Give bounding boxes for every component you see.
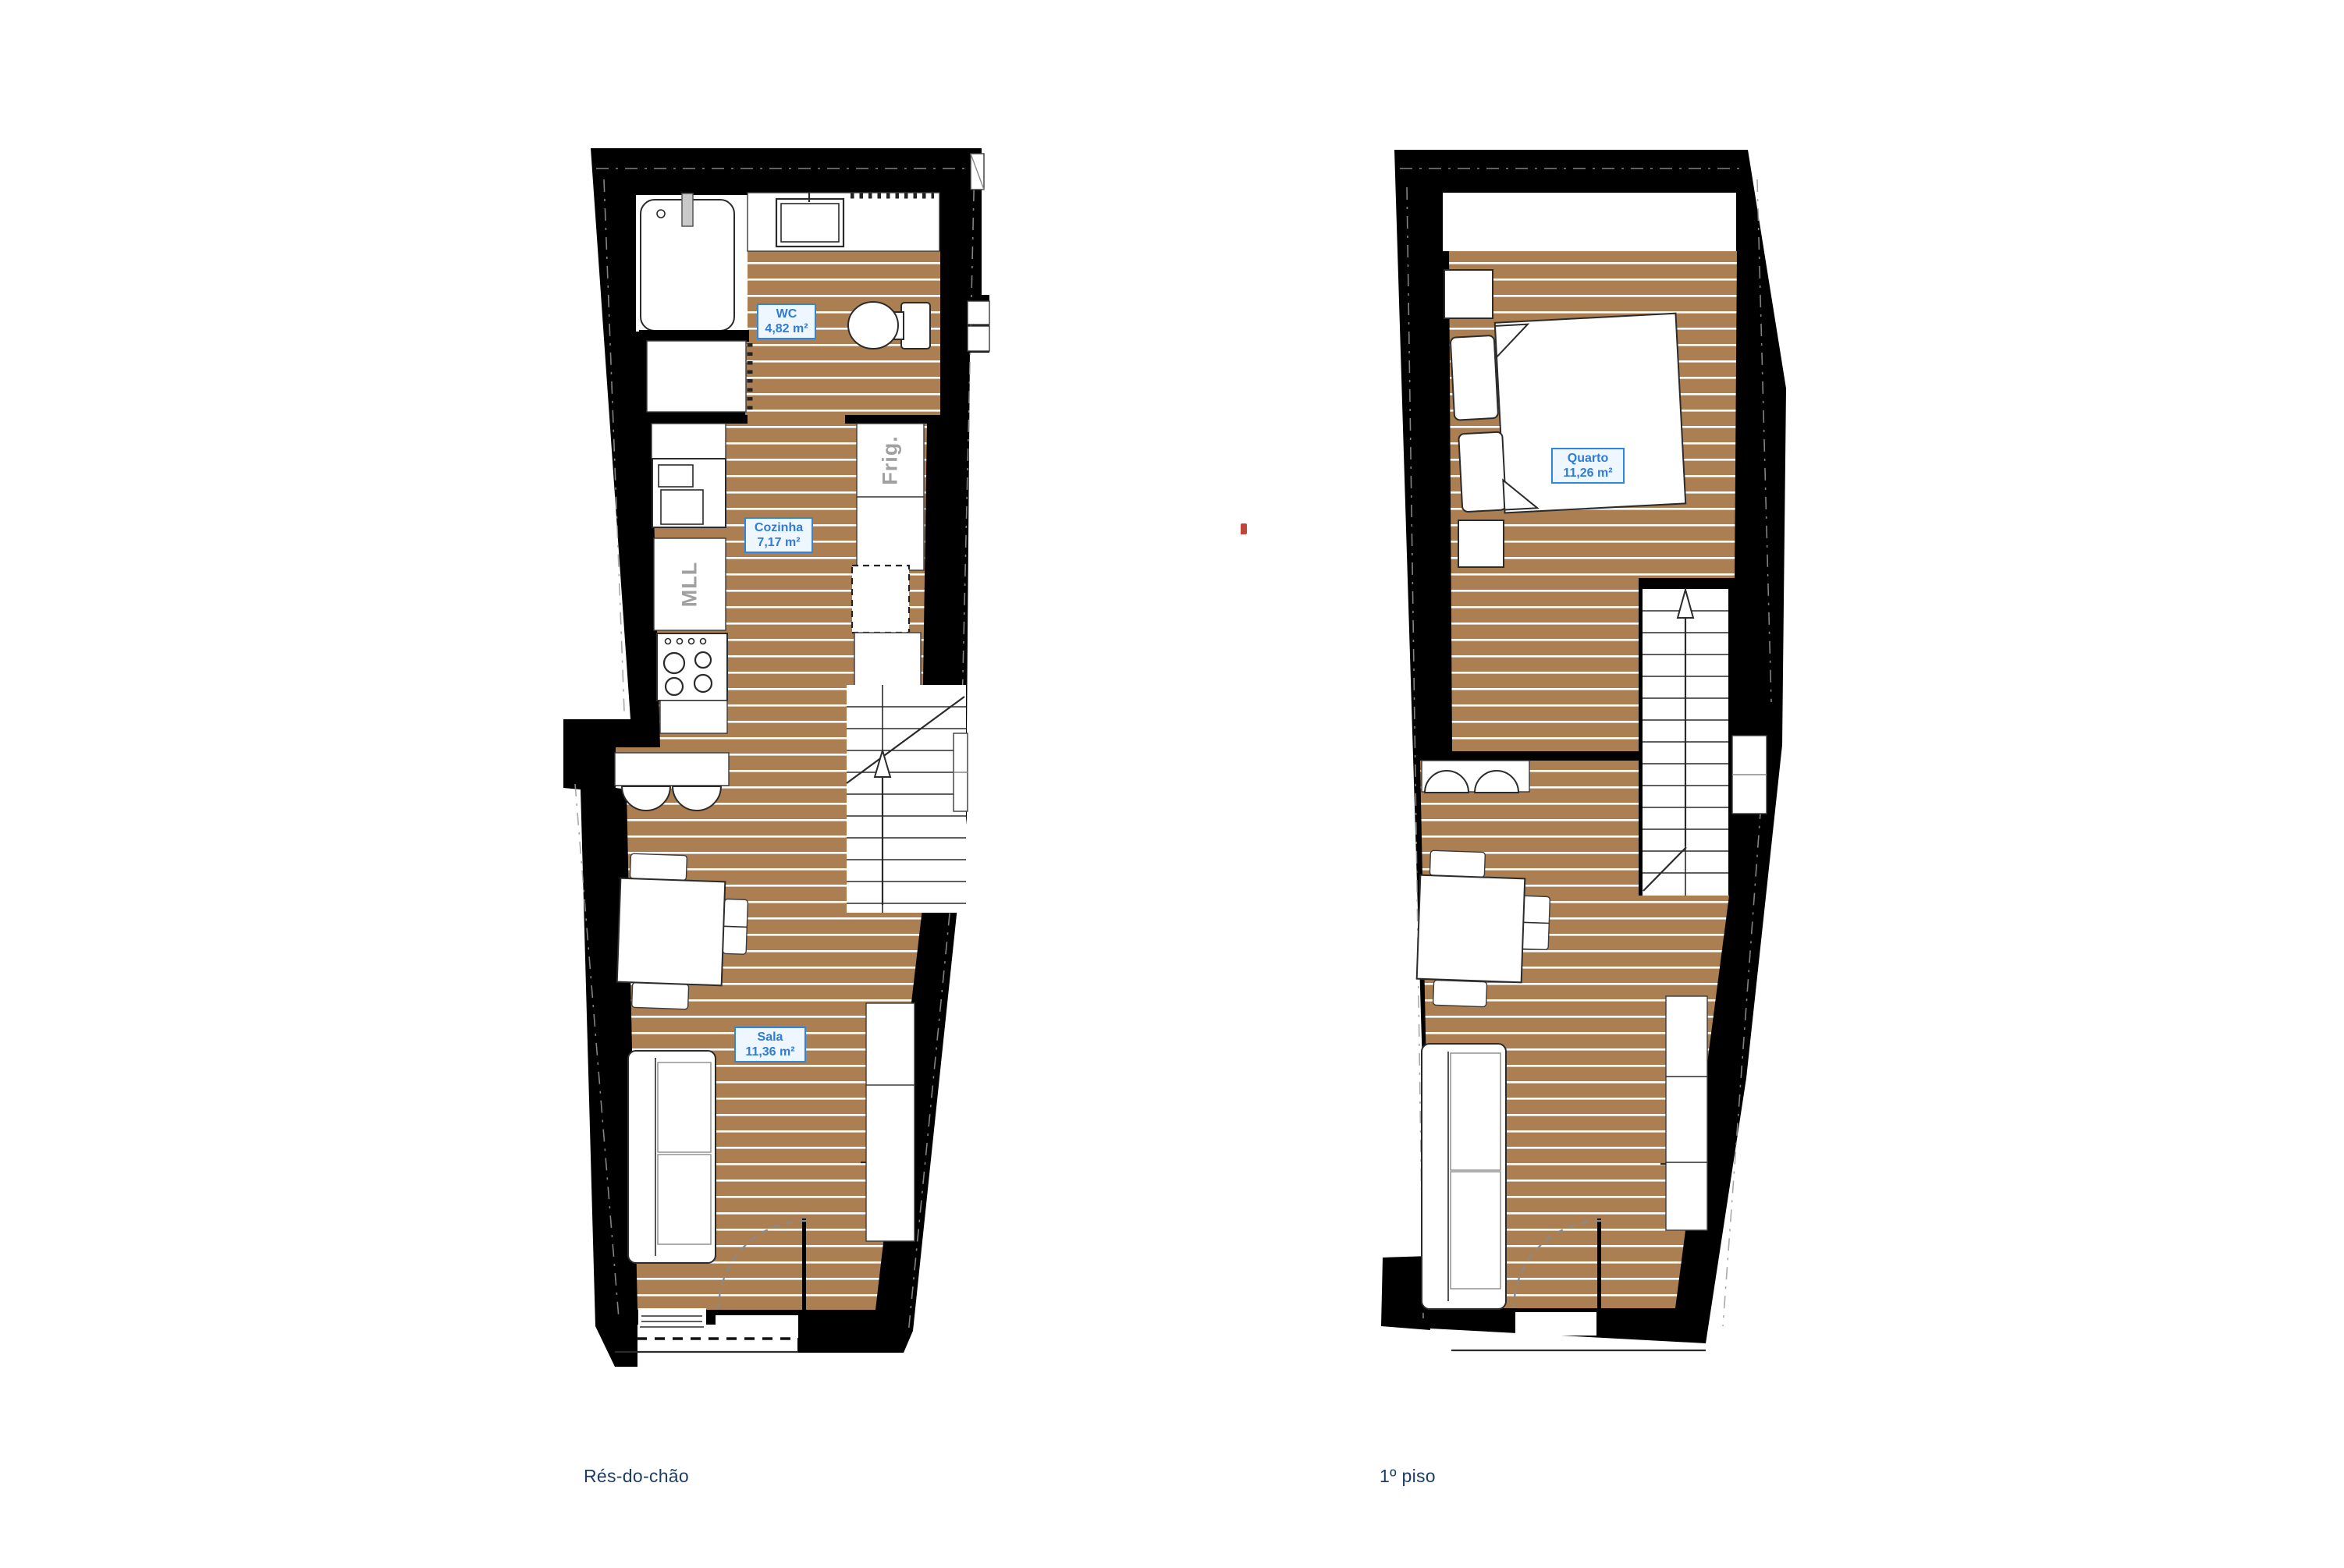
stair-window: [954, 733, 968, 811]
sofa-ground: [628, 1051, 716, 1263]
toilet: [848, 302, 930, 349]
staircase-ground: [847, 685, 966, 913]
room-area: 11,26 m²: [1554, 466, 1621, 481]
pillow: [1458, 432, 1506, 513]
wardrobe-first: [1660, 996, 1707, 1230]
floorplan-drawing: [0, 0, 2344, 1568]
floorplan-page: WC 4,82 m² Cozinha 7,17 m² Sala 11,36 m²…: [0, 0, 2344, 1568]
room-name: Quarto: [1554, 451, 1621, 466]
pillow: [1451, 335, 1498, 420]
dining-table: [617, 878, 726, 986]
sideboard: [615, 753, 729, 786]
dishwasher: [852, 566, 909, 633]
ground-floor-title: Rés-do-chão: [584, 1466, 689, 1487]
chair: [630, 853, 687, 880]
bathtub-faucet: [682, 193, 693, 226]
first-door-leaf: [1597, 1219, 1601, 1311]
stair-window-first: [1732, 736, 1767, 814]
room-name: WC: [760, 307, 813, 321]
dining-table: [1417, 875, 1525, 983]
room-label-sala: Sala 11,36 m²: [734, 1027, 806, 1062]
red-artifact-mark: [1241, 523, 1247, 534]
first-floor-title: 1º piso: [1380, 1466, 1436, 1487]
room-name: Cozinha: [748, 520, 810, 535]
room-label-quarto: Quarto 11,26 m²: [1551, 448, 1625, 484]
chair: [1433, 980, 1487, 1006]
wc-cabinet: [647, 341, 746, 412]
plan-first-drawing: [1381, 150, 1786, 1350]
room-area: 4,82 m²: [760, 321, 813, 336]
wall-basin: [968, 301, 989, 351]
chair: [1429, 850, 1485, 877]
staircase-first: [1643, 589, 1728, 896]
entry-door-leaf: [802, 1219, 806, 1311]
wardrobe-ground: [861, 1003, 915, 1241]
bed: [1450, 314, 1685, 516]
room-area: 7,17 m²: [748, 535, 810, 550]
fridge-label: Frig.: [879, 435, 903, 485]
stove: [657, 633, 727, 701]
washing-machine-label: MLL: [678, 562, 702, 607]
nightstand: [1458, 520, 1504, 567]
kitchen-sink: [652, 459, 726, 527]
room-name: Sala: [737, 1030, 803, 1045]
sofa-first: [1422, 1044, 1506, 1309]
nightstand: [1444, 270, 1493, 318]
room-area: 11,36 m²: [737, 1045, 803, 1059]
bedroom-window-strip: [1443, 193, 1736, 251]
room-label-wc: WC 4,82 m²: [757, 303, 816, 339]
room-label-cozinha: Cozinha 7,17 m²: [744, 517, 813, 553]
chair: [632, 982, 689, 1009]
